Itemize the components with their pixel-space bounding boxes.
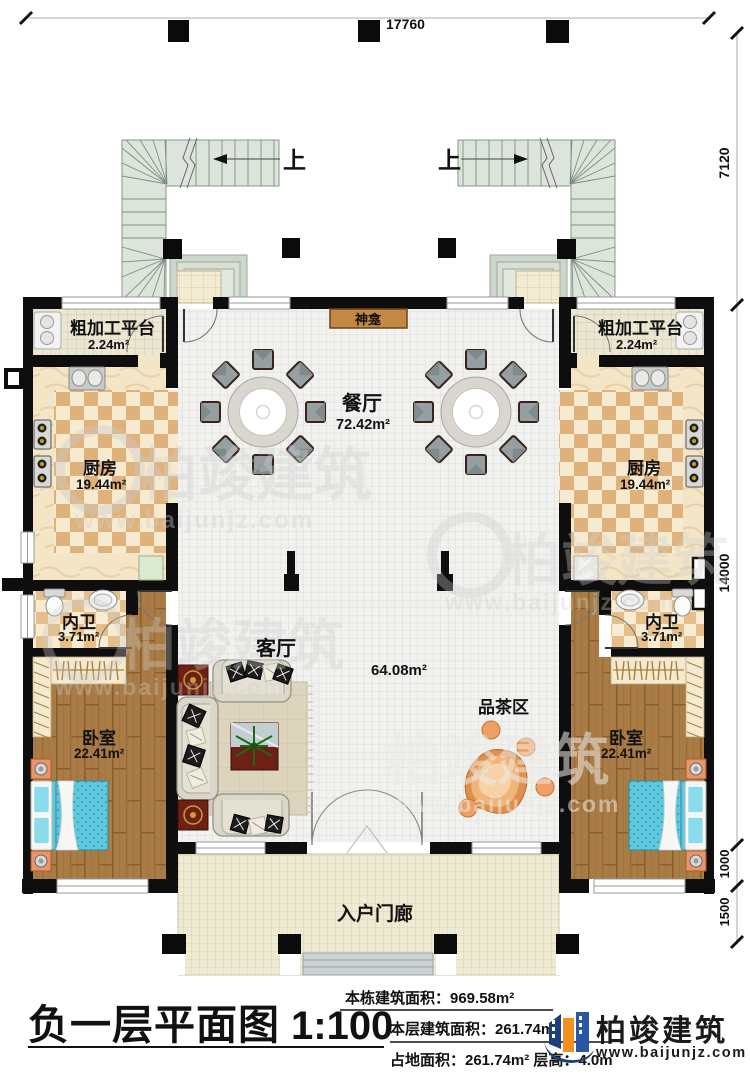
svg-text:本栋建筑面积：969.58m²: 本栋建筑面积：969.58m² xyxy=(345,989,514,1007)
svg-text:19.44m²: 19.44m² xyxy=(620,477,671,492)
svg-text:柏竣建筑: 柏竣建筑 xyxy=(505,529,729,592)
svg-text:22.41m²: 22.41m² xyxy=(601,746,652,761)
svg-text:1000: 1000 xyxy=(717,850,732,879)
svg-text:柏竣建筑: 柏竣建筑 xyxy=(140,443,372,508)
svg-text:品茶区: 品茶区 xyxy=(478,697,529,717)
svg-text:餐厅: 餐厅 xyxy=(342,391,382,415)
svg-text:www.baijunjz.com: www.baijunjz.com xyxy=(389,791,621,817)
svg-text:本层建筑面积：261.74m²: 本层建筑面积：261.74m² xyxy=(390,1020,559,1038)
svg-text:上: 上 xyxy=(283,147,306,173)
svg-text:72.42m²: 72.42m² xyxy=(336,417,390,433)
svg-text:负一层平面图: 负一层平面图 xyxy=(28,1002,280,1048)
svg-text:www.baijunjz.com: www.baijunjz.com xyxy=(444,589,676,615)
svg-text:www.baijunjz.com: www.baijunjz.com xyxy=(54,674,286,700)
svg-text:www.baijunjz.com: www.baijunjz.com xyxy=(74,507,314,534)
svg-text:64.08m²: 64.08m² xyxy=(371,662,427,679)
svg-text:7120: 7120 xyxy=(716,147,732,178)
svg-text:22.41m²: 22.41m² xyxy=(74,746,125,761)
svg-text:2.24m²: 2.24m² xyxy=(88,337,130,352)
svg-text:厨房: 厨房 xyxy=(83,458,117,478)
svg-text:19.44m²: 19.44m² xyxy=(76,477,127,492)
svg-text:粗加工平台: 粗加工平台 xyxy=(70,318,155,338)
svg-text:1500: 1500 xyxy=(717,898,732,927)
svg-text:厨房: 厨房 xyxy=(627,458,661,478)
svg-text:神龛: 神龛 xyxy=(355,312,382,327)
svg-text:上: 上 xyxy=(438,147,461,173)
svg-text:客厅: 客厅 xyxy=(255,636,296,660)
svg-text:2.24m²: 2.24m² xyxy=(616,337,658,352)
svg-text:卧室: 卧室 xyxy=(609,728,643,748)
svg-text:3.71m²: 3.71m² xyxy=(641,629,683,644)
svg-text:www.baijunjz.com: www.baijunjz.com xyxy=(595,1045,747,1061)
svg-text:卧室: 卧室 xyxy=(82,728,116,748)
svg-text:柏竣建筑: 柏竣建筑 xyxy=(385,729,609,792)
svg-text:入户门廊: 入户门廊 xyxy=(337,902,413,925)
svg-text:柏竣建筑: 柏竣建筑 xyxy=(596,1014,728,1048)
svg-text:3.71m²: 3.71m² xyxy=(58,629,100,644)
svg-text:柏竣建筑: 柏竣建筑 xyxy=(120,614,344,677)
svg-text:17760: 17760 xyxy=(386,16,425,32)
svg-text:粗加工平台: 粗加工平台 xyxy=(598,318,683,338)
